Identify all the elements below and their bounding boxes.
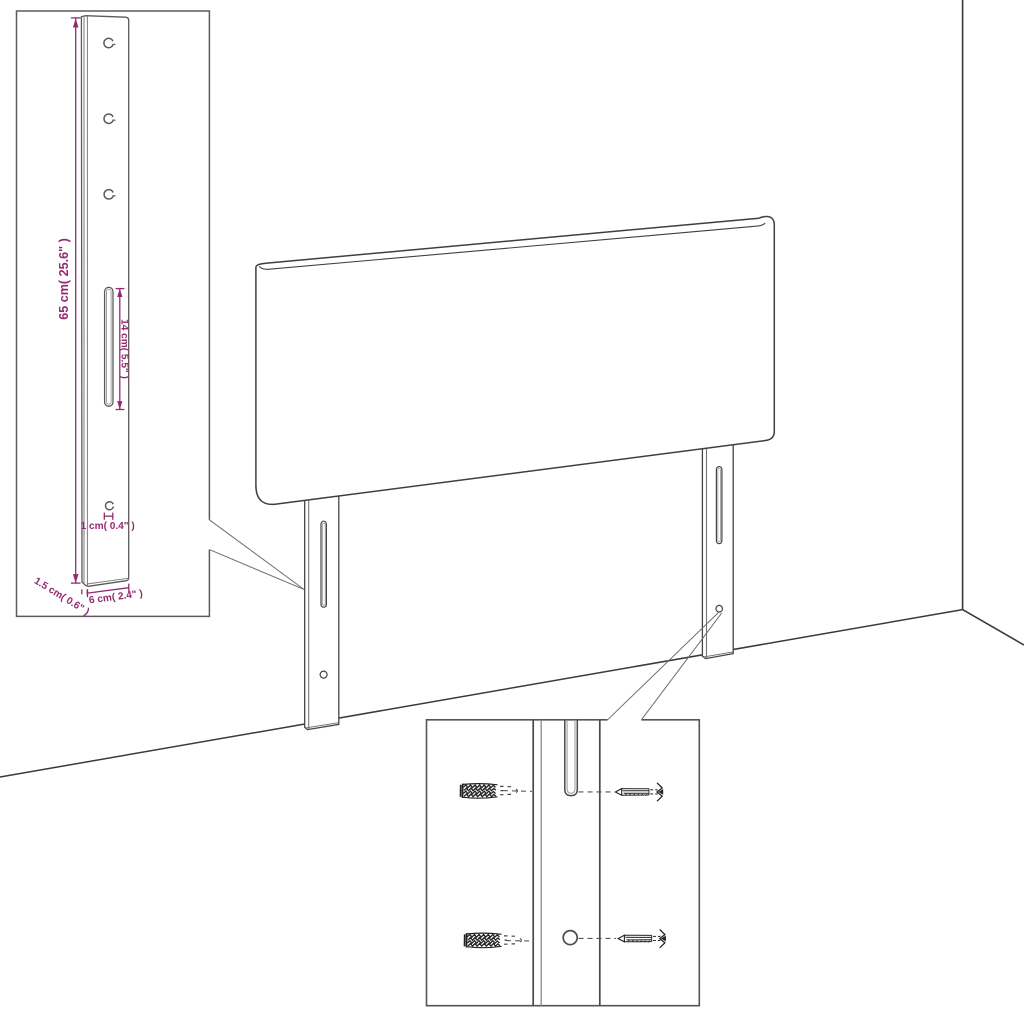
svg-text:14 cm( 5.5" ): 14 cm( 5.5" ) <box>118 319 129 379</box>
svg-text:6 cm( 2.4" ): 6 cm( 2.4" ) <box>88 588 143 606</box>
svg-text:1 cm( 0.4" ): 1 cm( 0.4" ) <box>81 521 135 532</box>
svg-text:65 cm( 25.6" ): 65 cm( 25.6" ) <box>57 238 71 320</box>
